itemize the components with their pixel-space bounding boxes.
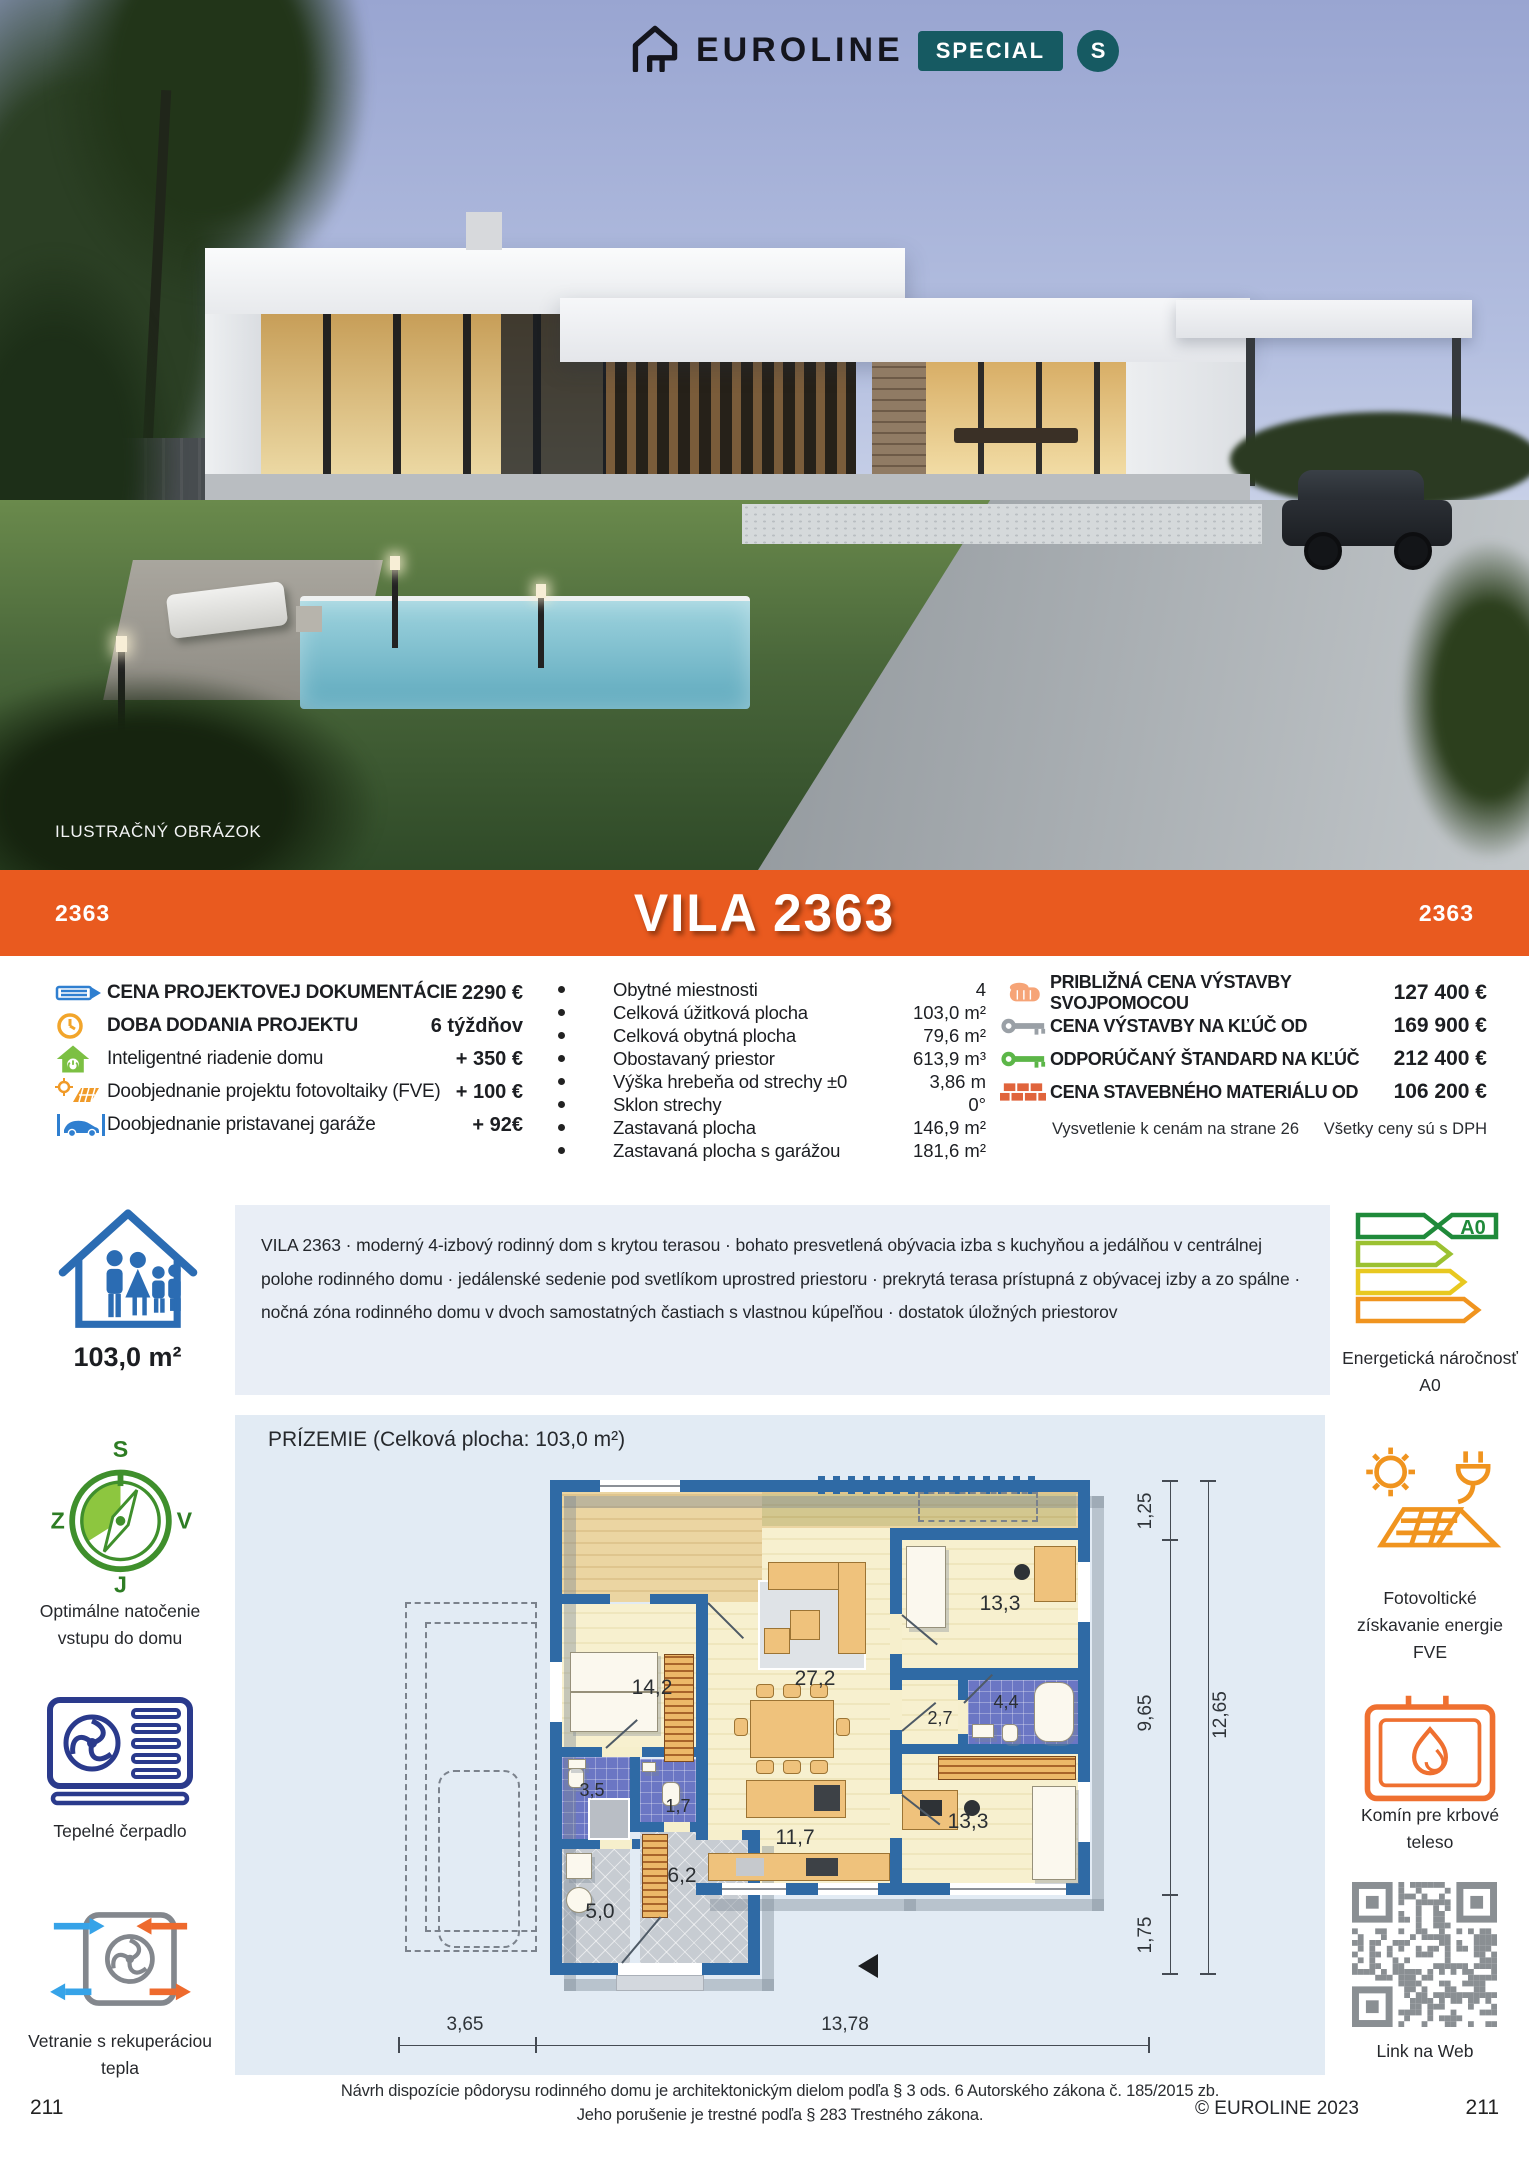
price-row: ODPORÚČANÝ ŠTANDARD NA KĽÚČ 212 400 € bbox=[1000, 1044, 1487, 1074]
dimension-tick bbox=[398, 2037, 400, 2053]
price-value: 127 400 € bbox=[1394, 981, 1487, 1005]
spec-label: Výška hrebeňa od strechy ±0 bbox=[613, 1071, 929, 1093]
bullet bbox=[558, 1147, 565, 1154]
spec-label: Zastavaná plocha bbox=[613, 1117, 913, 1139]
chair bbox=[810, 1760, 828, 1774]
fireplace-icon bbox=[1360, 1692, 1500, 1811]
window bbox=[1078, 1782, 1090, 1842]
door-opening bbox=[890, 1794, 902, 1838]
glass-facade-left bbox=[261, 314, 606, 476]
title-band: 2363 VILA 2363 2363 bbox=[0, 870, 1529, 956]
door-opening bbox=[618, 1963, 702, 1975]
bullet bbox=[558, 1124, 565, 1131]
catalog-page: ILUSTRAČNÝ OBRÁZOK EUROLINE SPECIAL S 23… bbox=[0, 0, 1529, 2160]
sink bbox=[568, 1759, 586, 1769]
spec-value: 4 bbox=[976, 979, 986, 1001]
compass-icon: S Z V J bbox=[48, 1438, 193, 1601]
car-outline bbox=[438, 1770, 520, 1948]
room-area-label: 3,5 bbox=[562, 1780, 622, 1801]
door-opening bbox=[664, 1822, 690, 1832]
room-area-label: 5,0 bbox=[570, 1900, 630, 1924]
chair bbox=[756, 1684, 774, 1698]
page-number-left: 211 bbox=[30, 2096, 63, 2120]
door-opening bbox=[600, 1839, 632, 1849]
car bbox=[1282, 470, 1452, 570]
spec-row: Obytné miestnosti4 bbox=[558, 978, 986, 1001]
option-row: CENA PROJEKTOVEJ DOKUMENTÁCIE 2290 € bbox=[55, 978, 523, 1008]
price-row: CENA VÝSTAVBY NA KĽÚČ OD 169 900 € bbox=[1000, 1011, 1487, 1041]
price-value: 169 900 € bbox=[1394, 1014, 1487, 1038]
option-value: 6 týždňov bbox=[431, 1015, 523, 1038]
dimension-label: 1,25 bbox=[1135, 1481, 1157, 1541]
glass-facade-right bbox=[926, 362, 1126, 476]
pencil-icon bbox=[55, 980, 107, 1006]
option-label: CENA PROJEKTOVEJ DOKUMENTÁCIE bbox=[107, 982, 462, 1004]
spec-row: Výška hrebeňa od strechy ±03,86 m bbox=[558, 1070, 986, 1093]
bed bbox=[1032, 1786, 1076, 1880]
brand-logo: EUROLINE SPECIAL S bbox=[628, 24, 1119, 77]
spec-row: Celková obytná plocha79,6 m² bbox=[558, 1024, 986, 1047]
wall bbox=[890, 1528, 1090, 1540]
wall bbox=[550, 1480, 562, 1975]
dimension-label: 9,65 bbox=[1135, 1683, 1157, 1743]
photo-caption: ILUSTRAČNÝ OBRÁZOK bbox=[55, 822, 261, 842]
door-opening bbox=[890, 1614, 902, 1654]
room-area-label: 4,4 bbox=[976, 1692, 1036, 1713]
option-value: + 92€ bbox=[472, 1114, 523, 1137]
chair bbox=[734, 1718, 748, 1736]
spec-value: 0° bbox=[968, 1094, 986, 1116]
toilet bbox=[1002, 1724, 1018, 1742]
fireplace-label: Komín pre krbové teleso bbox=[1340, 1802, 1520, 1856]
dimension-tick bbox=[1162, 1480, 1178, 1482]
compass-label: Optimálne natočenie vstupu do domu bbox=[30, 1598, 210, 1652]
ventilation-icon bbox=[48, 1898, 193, 2025]
skylight-outline bbox=[918, 1492, 1038, 1522]
dimension-line bbox=[398, 2045, 1150, 2046]
key-gray-icon bbox=[1000, 1015, 1050, 1037]
light-glow bbox=[390, 556, 400, 570]
sink bbox=[972, 1724, 994, 1738]
svg-text:J: J bbox=[114, 1571, 127, 1596]
option-label: Doobjednanie pristavanej garáže bbox=[107, 1114, 472, 1136]
energy-label-text: Energetická náročnosť A0 bbox=[1340, 1345, 1520, 1399]
chair bbox=[756, 1760, 774, 1774]
bed bbox=[906, 1546, 946, 1628]
room-area-label: 27,2 bbox=[785, 1667, 845, 1691]
room-area-label: 13,3 bbox=[938, 1810, 998, 1834]
option-label: DOBA DODANIA PROJEKTU bbox=[107, 1015, 431, 1037]
wall bbox=[748, 1830, 760, 1975]
window bbox=[818, 1883, 878, 1895]
armchair bbox=[764, 1628, 790, 1654]
dimension-tick bbox=[1200, 1973, 1216, 1975]
bullet bbox=[558, 986, 565, 993]
dimension-label: 3,65 bbox=[420, 2014, 510, 2036]
spec-label: Celková obytná plocha bbox=[613, 1025, 923, 1047]
solar-icon bbox=[55, 1078, 107, 1106]
bullet bbox=[558, 1032, 565, 1039]
price-note-left: Vysvetlenie k cenám na strane 26 bbox=[1052, 1120, 1299, 1139]
dimension-line bbox=[1208, 1480, 1209, 1975]
floor-plan: 14,2 27,2 13,3 2,7 4,4 3,5 1,7 11,7 13,3… bbox=[270, 1462, 1230, 2075]
spec-value: 613,9 m³ bbox=[913, 1048, 986, 1070]
dining-silhouette bbox=[954, 428, 1078, 443]
option-value: 2290 € bbox=[462, 982, 523, 1005]
svg-text:V: V bbox=[177, 1508, 193, 1534]
chimney bbox=[466, 212, 502, 250]
clock-icon bbox=[55, 1011, 107, 1041]
bullet bbox=[558, 1101, 565, 1108]
key-green-icon bbox=[1000, 1048, 1050, 1070]
option-row: Inteligentné riadenie domu + 350 € bbox=[55, 1044, 523, 1074]
page-code-right: 2363 bbox=[1419, 900, 1474, 927]
spec-value: 103,0 m² bbox=[913, 1002, 986, 1024]
light-glow bbox=[536, 584, 546, 598]
chair bbox=[836, 1718, 850, 1736]
pool bbox=[300, 596, 750, 709]
page-number-right: 211 bbox=[1466, 2096, 1499, 2120]
spec-value: 79,6 m² bbox=[923, 1025, 986, 1047]
price-label: CENA VÝSTAVBY NA KĽÚČ OD bbox=[1050, 1016, 1394, 1037]
smart-home-icon bbox=[55, 1043, 107, 1075]
chair bbox=[783, 1760, 801, 1774]
spec-label: Zastavaná plocha s garážou bbox=[613, 1140, 913, 1162]
dimension-tick bbox=[1200, 1480, 1216, 1482]
photovoltaic-icon bbox=[1355, 1440, 1505, 1567]
room-area-label: 14,2 bbox=[622, 1676, 682, 1700]
dimension-tick bbox=[1162, 1973, 1178, 1975]
wall bbox=[696, 1594, 708, 1759]
window bbox=[1078, 1562, 1090, 1622]
kitchen-sink bbox=[736, 1858, 764, 1876]
price-label: PRIBLIŽNÁ CENA VÝSTAVBY SVOJPOMOCOU bbox=[1050, 972, 1394, 1014]
wall bbox=[562, 1594, 610, 1604]
house-photo: ILUSTRAČNÝ OBRÁZOK EUROLINE SPECIAL S bbox=[0, 0, 1529, 870]
svg-text:S: S bbox=[113, 1438, 128, 1462]
total-area-label: 103,0 m² bbox=[35, 1342, 220, 1373]
dimension-tick bbox=[1162, 1539, 1178, 1541]
bathtub bbox=[1034, 1682, 1074, 1742]
spec-value: 181,6 m² bbox=[913, 1140, 986, 1162]
window-mullions bbox=[926, 362, 1126, 476]
entry-steps bbox=[616, 1975, 704, 1991]
copyright: © EUROLINE 2023 bbox=[1195, 2098, 1359, 2120]
washer bbox=[566, 1853, 592, 1879]
option-value: + 100 € bbox=[456, 1081, 523, 1104]
island-sink bbox=[814, 1785, 840, 1811]
option-row: Doobjednanie projektu fotovoltaiky (FVE)… bbox=[55, 1077, 523, 1107]
option-row: Doobjednanie pristavanej garáže + 92€ bbox=[55, 1110, 523, 1140]
svg-text:A0: A0 bbox=[1460, 1217, 1486, 1239]
room-area-label: 6,2 bbox=[652, 1864, 712, 1888]
price-value: 212 400 € bbox=[1394, 1047, 1487, 1071]
dimension-tick bbox=[535, 2037, 537, 2053]
legal-text-1: Návrh dispozície pôdorysu rodinného domu… bbox=[290, 2082, 1270, 2101]
window bbox=[950, 1883, 1014, 1895]
room-area-label: 13,3 bbox=[970, 1592, 1030, 1616]
special-badge: SPECIAL bbox=[918, 31, 1063, 71]
option-row: DOBA DODANIA PROJEKTU 6 týždňov bbox=[55, 1011, 523, 1041]
coffee-table bbox=[790, 1610, 820, 1640]
dimension-tick bbox=[1148, 2037, 1150, 2053]
bullet bbox=[558, 1009, 565, 1016]
room-area-label: 1,7 bbox=[648, 1796, 708, 1817]
bollard-light bbox=[538, 584, 544, 668]
wardrobe bbox=[938, 1756, 1076, 1780]
spec-row: Obostavaný priestor613,9 m³ bbox=[558, 1047, 986, 1070]
wall bbox=[890, 1744, 1090, 1754]
spec-label: Celková úžitková plocha bbox=[613, 1002, 913, 1024]
chair bbox=[1014, 1564, 1030, 1580]
dimension-label: 12,65 bbox=[1210, 1680, 1232, 1750]
window bbox=[550, 1662, 562, 1722]
dimension-label: 13,78 bbox=[790, 2014, 900, 2036]
north-arrow bbox=[858, 1954, 878, 1978]
spec-row: Sklon strechy0° bbox=[558, 1093, 986, 1116]
wall bbox=[630, 1757, 640, 1832]
heat-pump-icon bbox=[45, 1695, 195, 1812]
spec-row: Celková úžitková plocha103,0 m² bbox=[558, 1001, 986, 1024]
bullet bbox=[558, 1055, 565, 1062]
room-area-label: 11,7 bbox=[765, 1826, 825, 1850]
room-area-label: 2,7 bbox=[910, 1708, 970, 1729]
door-opening bbox=[708, 1830, 742, 1840]
sink bbox=[642, 1762, 656, 1772]
window bbox=[1014, 1883, 1066, 1895]
bricks-icon bbox=[1000, 1079, 1050, 1105]
stove bbox=[806, 1858, 838, 1876]
house-description: VILA 2363 · moderný 4-izbový rodinný dom… bbox=[235, 1205, 1330, 1395]
wardrobe bbox=[664, 1654, 694, 1762]
brand-name: EUROLINE bbox=[696, 31, 904, 70]
shower bbox=[588, 1798, 630, 1840]
car-wheel bbox=[1304, 532, 1342, 570]
price-row: CENA STAVEBNÉHO MATERIÁLU OD 106 200 € bbox=[1000, 1077, 1487, 1107]
bollard-light bbox=[392, 556, 398, 648]
terrace-floor bbox=[562, 1492, 762, 1602]
price-note-right: Všetky ceny sú s DPH bbox=[1290, 1120, 1487, 1139]
plan-title: PRÍZEMIE (Celková plocha: 103,0 m²) bbox=[268, 1428, 625, 1452]
legal-text-2: Jeho porušenie je trestné podľa § 283 Tr… bbox=[290, 2106, 1270, 2125]
qr-label: Link na Web bbox=[1350, 2038, 1500, 2065]
s-circle-badge: S bbox=[1077, 30, 1119, 72]
light-glow bbox=[116, 636, 127, 652]
spec-label: Sklon strechy bbox=[613, 1094, 968, 1116]
sofa bbox=[838, 1562, 866, 1654]
spec-value: 3,86 m bbox=[929, 1071, 986, 1093]
door-opening bbox=[602, 1747, 642, 1757]
qr-code bbox=[1352, 1882, 1497, 2027]
house-wall-pier bbox=[205, 314, 261, 476]
window bbox=[600, 1480, 680, 1492]
side-table bbox=[296, 606, 322, 632]
house-fascia-right bbox=[560, 298, 1250, 362]
gravel-strip bbox=[742, 504, 1262, 544]
brick-pier bbox=[872, 362, 926, 476]
car-icon bbox=[55, 1112, 107, 1138]
pergola-beam bbox=[1176, 300, 1472, 338]
house-family-icon bbox=[52, 1200, 204, 1341]
price-label: ODPORÚČANÝ ŠTANDARD NA KĽÚČ bbox=[1050, 1049, 1394, 1070]
option-value: + 350 € bbox=[456, 1048, 523, 1071]
price-label: CENA STAVEBNÉHO MATERIÁLU OD bbox=[1050, 1082, 1394, 1103]
price-row: PRIBLIŽNÁ CENA VÝSTAVBY SVOJPOMOCOU 127 … bbox=[1000, 978, 1487, 1008]
spec-row: Zastavaná plocha146,9 m² bbox=[558, 1116, 986, 1139]
option-label: Doobjednanie projektu fotovoltaiky (FVE) bbox=[107, 1081, 456, 1103]
svg-text:Z: Z bbox=[51, 1508, 65, 1534]
bullet bbox=[558, 1078, 565, 1085]
car-wheel bbox=[1394, 532, 1432, 570]
heat-pump-label: Tepelné čerpadlo bbox=[40, 1818, 200, 1845]
dimension-line bbox=[1170, 1480, 1171, 1975]
door-opening bbox=[890, 1690, 902, 1730]
price-value: 106 200 € bbox=[1394, 1080, 1487, 1104]
dining-table bbox=[750, 1700, 834, 1758]
energy-label-icon: A0 bbox=[1352, 1208, 1502, 1331]
desk bbox=[1034, 1546, 1076, 1602]
option-label: Inteligentné riadenie domu bbox=[107, 1048, 456, 1070]
page-title: VILA 2363 bbox=[23, 883, 1506, 944]
window bbox=[722, 1883, 786, 1895]
ventilation-label: Vetranie s rekuperáciou tepla bbox=[25, 2028, 215, 2082]
dimension-tick bbox=[1162, 1894, 1178, 1896]
euroline-house-icon bbox=[628, 24, 682, 77]
hand-icon bbox=[1000, 979, 1050, 1007]
spec-label: Obytné miestnosti bbox=[613, 979, 976, 1001]
spec-label: Obostavaný priestor bbox=[613, 1048, 913, 1070]
spec-value: 146,9 m² bbox=[913, 1117, 986, 1139]
spec-row: Zastavaná plocha s garážou181,6 m² bbox=[558, 1139, 986, 1162]
photovoltaic-label: Fotovoltické získavanie energie FVE bbox=[1340, 1585, 1520, 1666]
dimension-label: 1,75 bbox=[1135, 1905, 1157, 1965]
